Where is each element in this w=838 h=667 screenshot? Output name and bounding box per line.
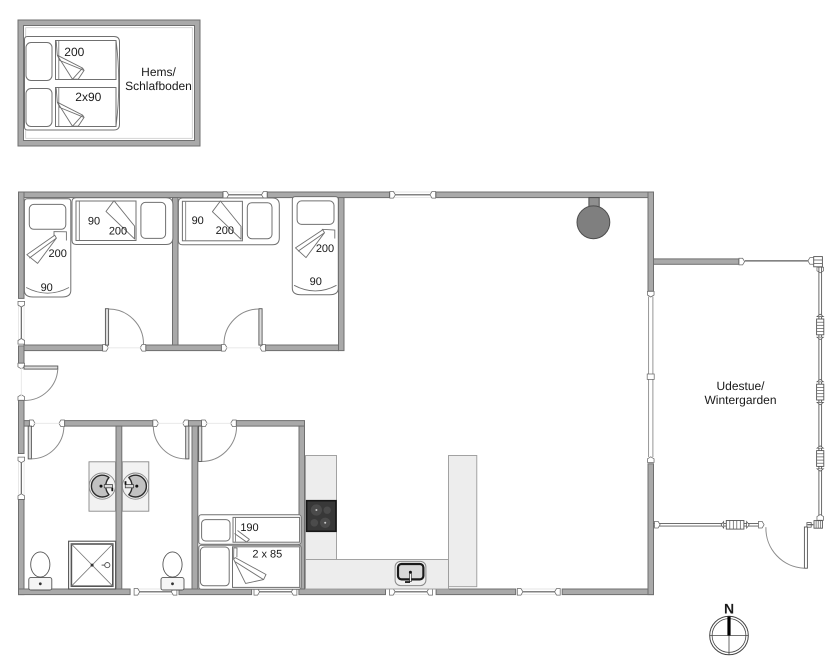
svg-text:N: N xyxy=(724,601,734,617)
svg-text:190: 190 xyxy=(240,522,258,534)
svg-text:Wintergarden: Wintergarden xyxy=(704,393,776,407)
svg-text:2x90: 2x90 xyxy=(75,90,101,104)
svg-text:2 x 85: 2 x 85 xyxy=(252,549,282,561)
svg-text:90: 90 xyxy=(41,282,53,294)
svg-text:Hems/: Hems/ xyxy=(141,65,176,79)
svg-text:90: 90 xyxy=(192,215,204,227)
svg-text:Udestue/: Udestue/ xyxy=(716,379,765,393)
svg-text:90: 90 xyxy=(88,216,100,228)
svg-text:200: 200 xyxy=(49,248,67,260)
svg-text:90: 90 xyxy=(310,276,322,288)
svg-text:200: 200 xyxy=(216,225,234,237)
svg-text:200: 200 xyxy=(109,225,127,237)
svg-text:200: 200 xyxy=(64,45,84,59)
svg-text:200: 200 xyxy=(316,243,334,255)
svg-text:Schlafboden: Schlafboden xyxy=(125,79,192,93)
